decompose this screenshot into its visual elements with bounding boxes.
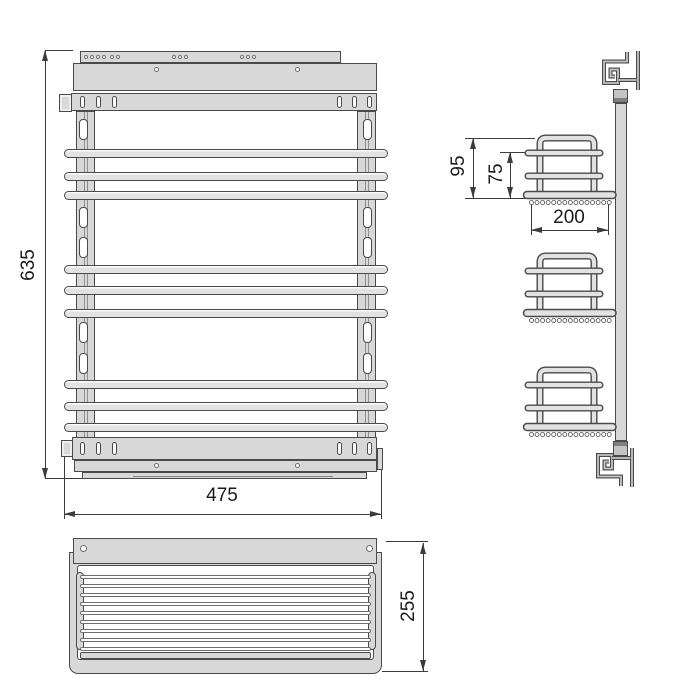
dim-width-label: 475 (192, 486, 252, 508)
wire-end-dot (557, 433, 561, 437)
dim-basket-outer-label: 95 (449, 151, 469, 181)
slide-rail-bottom-strip (82, 472, 367, 479)
dim-arrow-down (420, 660, 426, 671)
dim-arrow-right (370, 511, 381, 517)
wire-end-dot (574, 319, 578, 323)
basket-wire-bar (64, 380, 388, 389)
wire-end-dot (585, 201, 589, 205)
rail-end-tab (61, 440, 73, 457)
rivet-hole (184, 55, 188, 59)
post-slot (79, 237, 88, 258)
wire-end-dot (596, 319, 600, 323)
rail-slot (112, 96, 117, 108)
post-slot (363, 119, 372, 140)
basket-wire-bar (64, 172, 388, 181)
wire-end-dot (602, 319, 606, 323)
wire-end-dot (591, 319, 595, 323)
wire-end-dot (530, 201, 534, 205)
wire-end-dot (585, 433, 589, 437)
basket-wire-bar (64, 423, 388, 432)
wire-end-dot (579, 319, 583, 323)
basket-wire-bar (64, 402, 388, 411)
dim-extension-line (64, 457, 65, 519)
post-cap-top (613, 89, 628, 103)
dim-width-line (64, 514, 381, 515)
basket-base-wire (80, 611, 371, 615)
wire-end-dot (563, 201, 567, 205)
wire-end-dot (535, 433, 539, 437)
wire-end-dot (563, 433, 567, 437)
basket-base-wire (80, 620, 371, 624)
dim-basket-depth-label: 200 (547, 208, 591, 228)
mounting-rail-bottom (72, 437, 377, 460)
post-slot (363, 353, 372, 374)
wire-end-dot (557, 319, 561, 323)
wire-end-dot (563, 319, 567, 323)
plate-screw-hole (80, 545, 87, 552)
wire-end-dot (535, 319, 539, 323)
wire-end-dot (530, 433, 534, 437)
basket-wire-bar (64, 149, 388, 158)
dim-extension-line (45, 50, 73, 51)
basket-base-wire (80, 602, 371, 606)
wire-end-dot (591, 433, 595, 437)
wire-end-dot (546, 319, 550, 323)
rail-slot (96, 442, 101, 455)
dim-plan-depth-label: 255 (399, 588, 419, 624)
post-slot (79, 322, 88, 343)
wire-end-dot (607, 201, 611, 205)
basket-wire-bar (64, 286, 388, 295)
rivet-hole (246, 55, 250, 59)
dim-arrow-left (531, 227, 542, 233)
wire-end-dot (552, 433, 556, 437)
dim-height-line (45, 50, 46, 479)
post-slot (79, 207, 88, 228)
rivet-hole (172, 55, 176, 59)
dim-arrow-down (42, 468, 48, 479)
wire-end-dot (591, 201, 595, 205)
dim-extension-line (386, 541, 428, 542)
wire-end-dot (602, 201, 606, 205)
post-slot (363, 207, 372, 228)
basket-wire-bar (64, 309, 388, 318)
wire-end-dot (568, 433, 572, 437)
post-slot (363, 322, 372, 343)
rail-slot (337, 442, 342, 455)
wire-end-dot (552, 201, 556, 205)
wire-end-dot (568, 319, 572, 323)
wire-end-dot (579, 201, 583, 205)
wire-end-dot (579, 433, 583, 437)
rivet-hole (84, 55, 88, 59)
wire-end-dot (607, 433, 611, 437)
dim-extension-line (381, 470, 382, 519)
dim-extension-line (382, 671, 428, 672)
dim-arrow-left (64, 511, 75, 517)
basket-base-wire (80, 629, 371, 633)
rivet-hole (116, 55, 120, 59)
basket-base-wire (80, 647, 371, 651)
wire-end-dot (585, 319, 589, 323)
basket-base-wire (80, 584, 371, 588)
wire-end-dot (557, 201, 561, 205)
basket-handle-wire (540, 256, 594, 315)
wire-end-dot (596, 433, 600, 437)
spice-basket-side-view (524, 363, 616, 441)
wire-end-dot (574, 433, 578, 437)
rivet-hole (110, 55, 114, 59)
wire-end-dot (596, 201, 600, 205)
screw-hole (154, 67, 159, 72)
mounting-plate (73, 538, 377, 564)
post-cap-band (614, 98, 627, 102)
basket-base-wire (80, 575, 371, 579)
basket-wire-bar (64, 191, 388, 200)
wire-end-dot (552, 319, 556, 323)
dim-arrow-down (470, 187, 476, 198)
dim-arrow-down (507, 187, 513, 198)
basket-base-wire (80, 593, 371, 597)
wire-end-dot (574, 201, 578, 205)
slide-rail-profile-bottom (586, 446, 638, 498)
wire-end-dot (546, 433, 550, 437)
drawing-canvas: 635 475 (0, 0, 700, 700)
basket-handle-wire (540, 138, 594, 197)
rivet-hole (178, 55, 182, 59)
dim-arrow-up (420, 543, 426, 554)
rivet-hole (96, 55, 100, 59)
wire-end-dot (602, 433, 606, 437)
rail-slot (112, 442, 117, 455)
wire-end-dot (546, 201, 550, 205)
rivet-hole (252, 55, 256, 59)
post-slot (79, 119, 88, 140)
spice-basket-side-view (524, 249, 616, 327)
wire-end-dot (607, 319, 611, 323)
dim-arrow-up (507, 152, 513, 163)
slide-rail-bottom-band (74, 460, 377, 472)
post-cap-band (614, 442, 627, 446)
rivet-hole (240, 55, 244, 59)
basket-handle-wire (540, 370, 594, 429)
hanging-frame-post (615, 103, 627, 441)
basket-base-wire (80, 638, 371, 642)
wire-end-dot (541, 433, 545, 437)
screw-hole (295, 463, 300, 468)
wire-end-dot (568, 201, 572, 205)
rail-slot (352, 96, 357, 108)
slide-rail-top-band (73, 63, 377, 91)
plate-screw-hole (366, 545, 373, 552)
dim-extension-line (465, 198, 528, 199)
screw-hole (154, 463, 159, 468)
slide-rail-profile-top (592, 40, 644, 92)
dim-arrow-up (42, 50, 48, 61)
dim-arrow-right (597, 227, 608, 233)
dim-height-label: 635 (19, 243, 39, 287)
wire-end-dot (530, 319, 534, 323)
rail-end-tab (377, 448, 383, 470)
wire-end-dot (541, 201, 545, 205)
wire-end-dot (541, 319, 545, 323)
strip-seam-line (133, 476, 333, 477)
rivet-hole (102, 55, 106, 59)
spice-basket-side-view (524, 131, 616, 209)
post-slot (79, 353, 88, 374)
rail-slot (367, 442, 372, 455)
rail-slot (80, 442, 85, 455)
dim-arrow-up (470, 138, 476, 149)
rail-slot (80, 96, 85, 108)
post-cap-bottom (613, 441, 628, 456)
basket-front-rail (80, 652, 371, 659)
basket-wire-bar (64, 265, 388, 274)
dim-basket-inner-label: 75 (487, 159, 507, 189)
dim-plan-depth-line (423, 543, 424, 671)
rail-slot (352, 442, 357, 455)
rail-slot (96, 96, 101, 108)
screw-hole (295, 67, 300, 72)
rivet-hole (90, 55, 94, 59)
rail-end-tab (59, 94, 72, 112)
post-slot (363, 237, 372, 258)
rail-slot (367, 96, 372, 108)
rail-slot (337, 96, 342, 108)
wire-end-dot (535, 201, 539, 205)
